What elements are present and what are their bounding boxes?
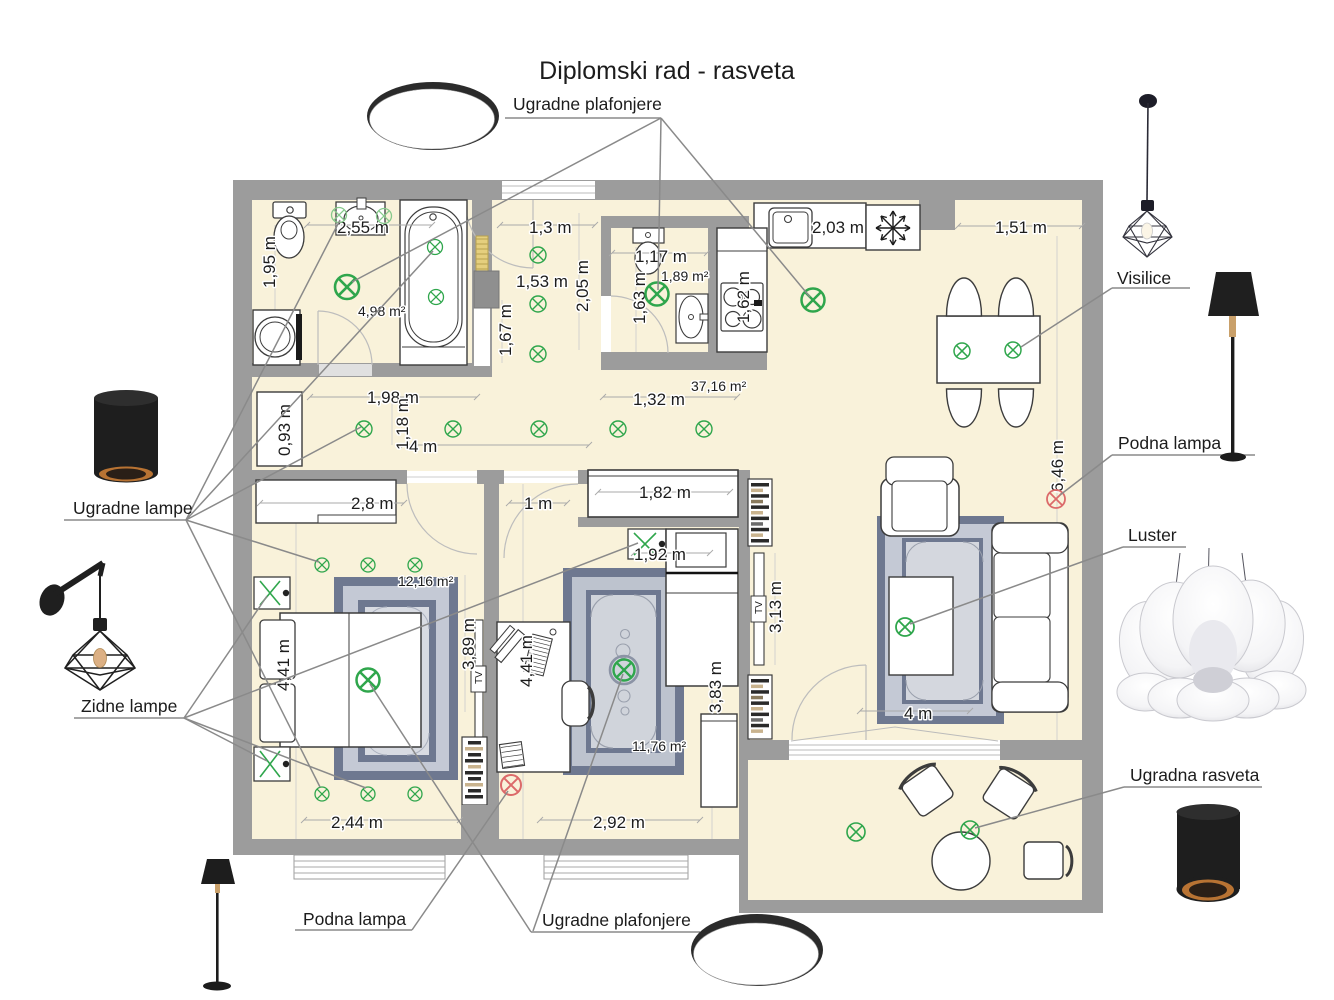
svg-text:1,32 m: 1,32 m <box>633 390 685 409</box>
svg-text:TV: TV <box>754 601 765 614</box>
svg-text:11,76 m²: 11,76 m² <box>632 738 687 754</box>
svg-text:1,95 m: 1,95 m <box>260 236 279 288</box>
svg-text:4 m: 4 m <box>904 704 932 723</box>
svg-text:Visilice: Visilice <box>1117 268 1171 288</box>
svg-text:Ugradna rasveta: Ugradna rasveta <box>1130 765 1260 785</box>
svg-text:4,98 m²: 4,98 m² <box>358 303 406 319</box>
svg-text:Ugradne lampe: Ugradne lampe <box>73 498 193 518</box>
svg-text:1,89 m²: 1,89 m² <box>661 268 709 284</box>
svg-text:3,13 m: 3,13 m <box>766 581 785 633</box>
svg-text:1,53 m: 1,53 m <box>516 272 568 291</box>
svg-text:1,82 m: 1,82 m <box>639 483 691 502</box>
svg-text:Podna lampa: Podna lampa <box>1118 433 1221 453</box>
svg-text:2,44 m: 2,44 m <box>331 813 383 832</box>
svg-text:2,92 m: 2,92 m <box>593 813 645 832</box>
svg-text:1,62 m: 1,62 m <box>734 271 753 323</box>
svg-text:6,46 m: 6,46 m <box>1048 440 1067 492</box>
svg-text:12,16 m²: 12,16 m² <box>398 573 454 589</box>
svg-text:2,55 m: 2,55 m <box>337 218 389 237</box>
svg-text:Luster: Luster <box>1128 525 1177 545</box>
svg-text:TV: TV <box>474 671 485 684</box>
svg-text:4,41 m: 4,41 m <box>274 639 293 691</box>
svg-text:1,67 m: 1,67 m <box>496 304 515 356</box>
svg-text:1,3 m: 1,3 m <box>529 218 572 237</box>
svg-text:3,89 m: 3,89 m <box>459 618 478 670</box>
svg-text:1,92 m: 1,92 m <box>634 545 686 564</box>
svg-text:2,8 m: 2,8 m <box>351 494 394 513</box>
svg-text:2,05 m: 2,05 m <box>573 260 592 312</box>
svg-text:1 m: 1 m <box>524 494 552 513</box>
svg-text:3,83 m: 3,83 m <box>706 661 725 713</box>
svg-text:2,03 m: 2,03 m <box>812 218 864 237</box>
svg-text:Ugradne plafonjere: Ugradne plafonjere <box>542 910 691 930</box>
svg-text:4,41 m: 4,41 m <box>517 635 536 687</box>
svg-text:Ugradne plafonjere: Ugradne plafonjere <box>513 94 662 114</box>
svg-text:4 m: 4 m <box>409 437 437 456</box>
svg-text:37,16 m²: 37,16 m² <box>691 378 747 394</box>
svg-text:1,17 m: 1,17 m <box>635 247 687 266</box>
svg-text:Zidne lampe: Zidne lampe <box>81 696 177 716</box>
svg-text:Podna lampa: Podna lampa <box>303 909 406 929</box>
svg-text:1,51 m: 1,51 m <box>995 218 1047 237</box>
svg-text:Diplomski rad - rasveta: Diplomski rad - rasveta <box>539 57 795 85</box>
